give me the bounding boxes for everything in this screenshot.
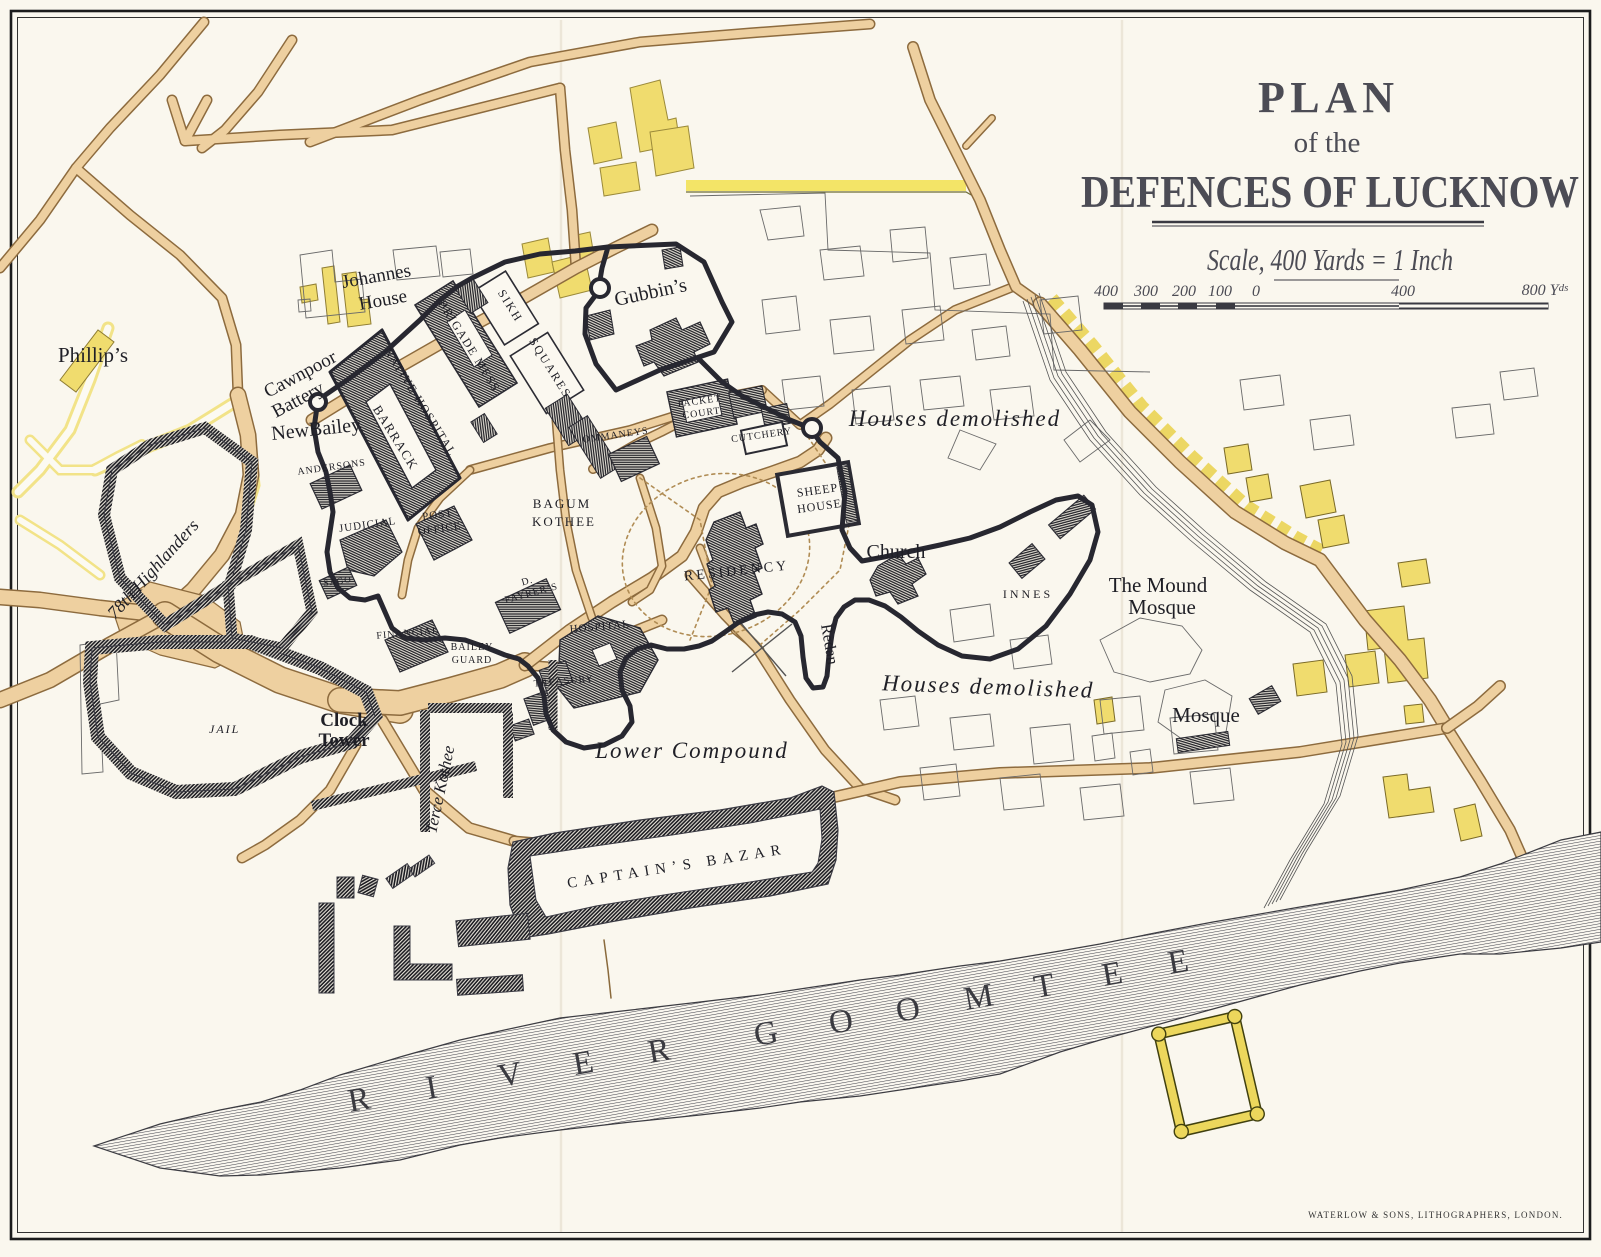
svg-text:GUARD: GUARD (452, 655, 493, 666)
svg-text:KOTHEE: KOTHEE (532, 514, 596, 529)
svg-text:Phillip’s: Phillip’s (58, 343, 128, 367)
svg-text:Scale, 400 Yards = 1 Inch: Scale, 400 Yards = 1 Inch (1207, 242, 1453, 277)
svg-text:M: M (961, 977, 996, 1018)
svg-text:400: 400 (1391, 283, 1415, 300)
svg-text:Clock: Clock (320, 710, 368, 731)
svg-text:INNES: INNES (1003, 587, 1053, 601)
svg-text:200: 200 (1172, 283, 1196, 300)
svg-text:WATERLOW & SONS, LITHOGRAPHERS: WATERLOW & SONS, LITHOGRAPHERS, LONDON. (1308, 1210, 1563, 1220)
svg-text:400: 400 (1094, 283, 1118, 300)
svg-text:Mosque: Mosque (1128, 595, 1196, 619)
svg-text:Mosque: Mosque (1172, 703, 1240, 727)
svg-text:of the: of the (1294, 127, 1361, 159)
svg-text:0: 0 (1252, 283, 1260, 300)
svg-text:The Mound: The Mound (1109, 573, 1208, 597)
svg-text:BAGUM: BAGUM (533, 496, 591, 511)
svg-text:DEFENCES OF LUCKNOW: DEFENCES OF LUCKNOW (1081, 166, 1579, 217)
svg-text:BAILEY: BAILEY (451, 642, 494, 653)
svg-text:Tower: Tower (318, 730, 370, 751)
svg-text:100: 100 (1208, 283, 1232, 300)
svg-text:Houses demolished: Houses demolished (848, 406, 1061, 431)
svg-text:JAIL: JAIL (209, 722, 240, 736)
svg-text:300: 300 (1133, 283, 1158, 300)
svg-text:PLAN: PLAN (1258, 73, 1408, 122)
svg-text:Church: Church (867, 541, 926, 563)
svg-text:Lower Compound: Lower Compound (594, 738, 789, 763)
